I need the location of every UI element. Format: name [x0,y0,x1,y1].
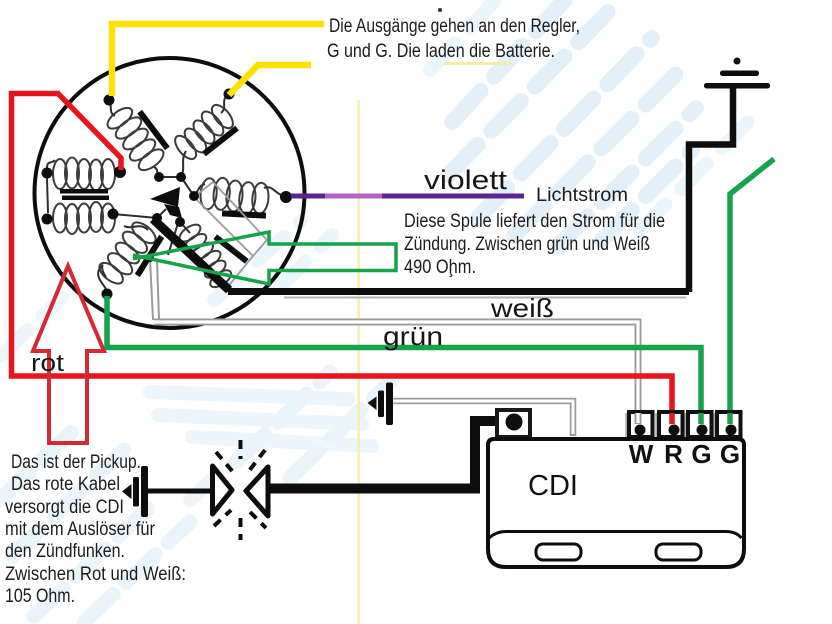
svg-text:G: G [720,439,740,469]
svg-text:Zwischen Rot und Weiß:: Zwischen Rot und Weiß: [5,564,186,585]
svg-text:Das rote Kabel: Das rote Kabel [11,474,120,495]
svg-text:Die Ausgänge gehen an den Regl: Die Ausgänge gehen an den Regler, [329,16,580,37]
svg-text:violett: violett [424,165,508,195]
svg-text:G und G. Die laden die Batteri: G und G. Die laden die Batterie. [327,41,555,62]
svg-text:rot: rot [31,350,64,377]
svg-text:W: W [629,439,654,469]
svg-text:G: G [691,439,711,469]
svg-text:den Zündfunken.: den Zündfunken. [5,541,125,562]
svg-text:490 Oḩm.: 490 Oḩm. [404,257,476,278]
svg-text:Zündung. Zwischen grün und Wei: Zündung. Zwischen grün und Weiß [404,234,650,255]
svg-text:CDI: CDI [528,470,578,502]
svg-text:versorgt die CDI: versorgt die CDI [5,497,124,518]
svg-text:mit dem Auslöser für: mit dem Auslöser für [5,519,156,540]
svg-text:grün: grün [383,321,443,351]
svg-text:Diese Spule liefert den Strom: Diese Spule liefert den Strom für die [404,211,665,232]
svg-text:Lichtstrom: Lichtstrom [536,185,628,206]
svg-text:Das ist der Pickup.: Das ist der Pickup. [11,452,141,473]
svg-text:weiß: weiß [490,293,554,323]
svg-text:R: R [664,439,683,469]
svg-text:105 Ohm.: 105 Ohm. [5,586,75,607]
